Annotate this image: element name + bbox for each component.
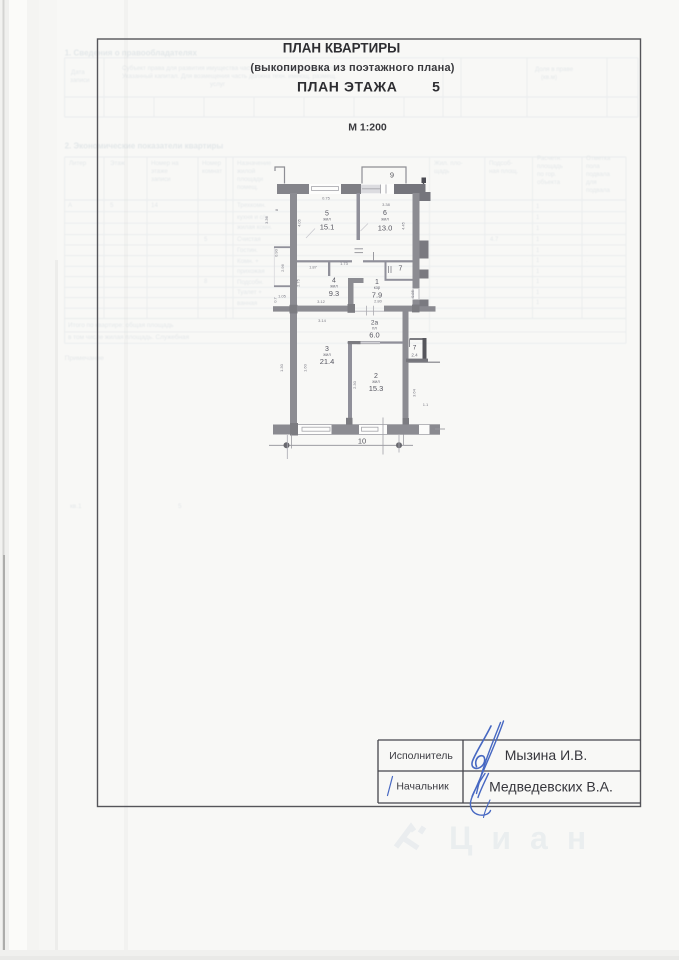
svg-text:2.75: 2.75 [296,278,301,287]
svg-text:Трехкомн.: Трехкомн. [237,202,266,209]
svg-text:Назначение: Назначение [237,160,272,167]
svg-text:0.85: 0.85 [410,289,415,298]
svg-text:Подсоб-: Подсоб- [489,160,513,167]
svg-text:10: 10 [358,437,366,446]
svg-text:площади: площади [237,176,264,183]
svg-text:Мызина И.В.: Мызина И.В. [505,747,588,763]
svg-text:1. Сведения о правообладателях: 1. Сведения о правообладателях [65,49,198,58]
svg-text:0.90: 0.90 [274,248,279,257]
svg-text:2.4: 2.4 [411,353,418,358]
svg-text:жил: жил [323,217,331,222]
svg-text:Литер: Литер [69,160,87,167]
svg-text:21.4: 21.4 [320,357,335,366]
svg-text:Дата: Дата [71,69,85,76]
svg-text:7: 7 [399,266,403,273]
svg-text:Туалет +: Туалет + [237,289,262,296]
svg-text:Номер: Номер [202,160,222,167]
svg-text:Отметка: Отметка [586,155,611,162]
svg-text:15.1: 15.1 [320,223,335,232]
svg-text:9.3: 9.3 [329,289,339,298]
svg-text:кв.1: кв.1 [70,503,82,510]
svg-text:прихожая: прихожая [237,268,265,275]
svg-text:4.45: 4.45 [401,221,406,230]
svg-text:1.1: 1.1 [423,402,429,407]
svg-text:объекта: объекта [537,179,561,186]
svg-text:Комн. +: Комн. + [237,258,259,265]
svg-text:подвала: подвала [586,171,611,178]
svg-text:1.60: 1.60 [303,363,308,372]
svg-text:жил: жил [381,217,389,222]
svg-text:Счистая: Счистая [237,236,261,243]
svg-text:2.30: 2.30 [352,380,357,389]
svg-text:жил: жил [330,284,338,289]
svg-text:в том числе жилая площадь. Слу: в том числе жилая площадь. Служебная [68,333,190,341]
svg-text:3.12: 3.12 [317,299,326,304]
svg-text:жилая комн.: жилая комн. [237,224,273,231]
svg-text:1.05: 1.05 [278,294,287,299]
svg-text:5: 5 [178,503,182,510]
svg-text:1.73: 1.73 [340,261,349,266]
svg-text:2.96: 2.96 [280,263,285,272]
svg-text:Исполнитель: Исполнитель [389,750,453,762]
svg-text:щадь: щадь [434,168,449,175]
svg-text:по гор.: по гор. [537,171,557,178]
svg-text:2. Экономические показатели кв: 2. Экономические показатели квартиры [65,142,224,151]
svg-text:Итого по квартире: общая площ: Итого по квартире: общая площадь [68,321,174,329]
svg-text:4.05: 4.05 [297,218,302,227]
svg-text:Медведевских В.А.: Медведевских В.А. [489,779,613,795]
svg-text:Номер на: Номер на [151,160,179,167]
svg-text:подвала: подвала [586,187,611,194]
svg-text:Гостин.: Гостин. [237,247,258,254]
svg-text:2.80: 2.80 [374,299,383,304]
svg-text:Начальник: Начальник [396,781,449,793]
svg-text:7: 7 [413,345,417,352]
svg-text:5: 5 [110,202,114,209]
svg-text:услуг: услуг [210,81,226,88]
svg-text:Примечание: Примечание [65,355,105,362]
svg-text:ная площ.: ная площ. [489,168,518,175]
svg-text:13.0: 13.0 [378,224,393,233]
svg-text:ванная: ванная [237,300,257,307]
svg-text:площадь: площадь [537,163,563,170]
svg-text:6.0: 6.0 [369,331,379,340]
svg-text:Расчетн.: Расчетн. [537,155,562,162]
svg-text:1.30: 1.30 [279,363,284,372]
svg-text:3.38: 3.38 [382,202,391,207]
svg-text:Циан: Циан [449,820,605,856]
svg-text:Подсобн.: Подсобн. [237,279,264,286]
svg-text:ПЛАН ЭТАЖА: ПЛАН ЭТАЖА [297,79,398,95]
svg-text:0.7: 0.7 [273,296,278,302]
svg-text:пола: пола [586,163,600,170]
svg-text:записи: записи [70,77,90,84]
svg-text:М 1:200: М 1:200 [348,122,387,134]
svg-text:кор: кор [374,285,381,290]
svg-text:9: 9 [390,171,394,180]
svg-text:1.87: 1.87 [309,265,318,270]
svg-text:помещ.: помещ. [237,184,259,191]
svg-text:жилой: жилой [237,168,256,175]
svg-text:3.14: 3.14 [318,318,327,323]
svg-text:для: для [586,179,597,186]
svg-text:Жил. пло-: Жил. пло- [434,160,463,167]
svg-text:Доля в праве: Доля в праве [535,66,574,73]
svg-text:(выкопировка из поэтажного пл: (выкопировка из поэтажного плана) [250,62,454,74]
svg-text:3.64: 3.64 [412,388,417,397]
svg-text:(кв.м): (кв.м) [541,74,557,81]
svg-text:15.3: 15.3 [369,384,384,393]
svg-text:комнат: комнат [202,168,222,175]
svg-text:этаже: этаже [151,168,168,175]
svg-text:Этаж: Этаж [110,160,126,167]
svg-text:4.7: 4.7 [490,237,499,243]
svg-text:записи: записи [151,176,171,183]
svg-text:3.36: 3.36 [264,215,269,224]
svg-text:ПЛАН КВАРТИРЫ: ПЛАН КВАРТИРЫ [283,41,401,56]
svg-text:14: 14 [151,202,158,209]
svg-text:0.75: 0.75 [322,196,331,201]
svg-text:5: 5 [432,79,440,95]
